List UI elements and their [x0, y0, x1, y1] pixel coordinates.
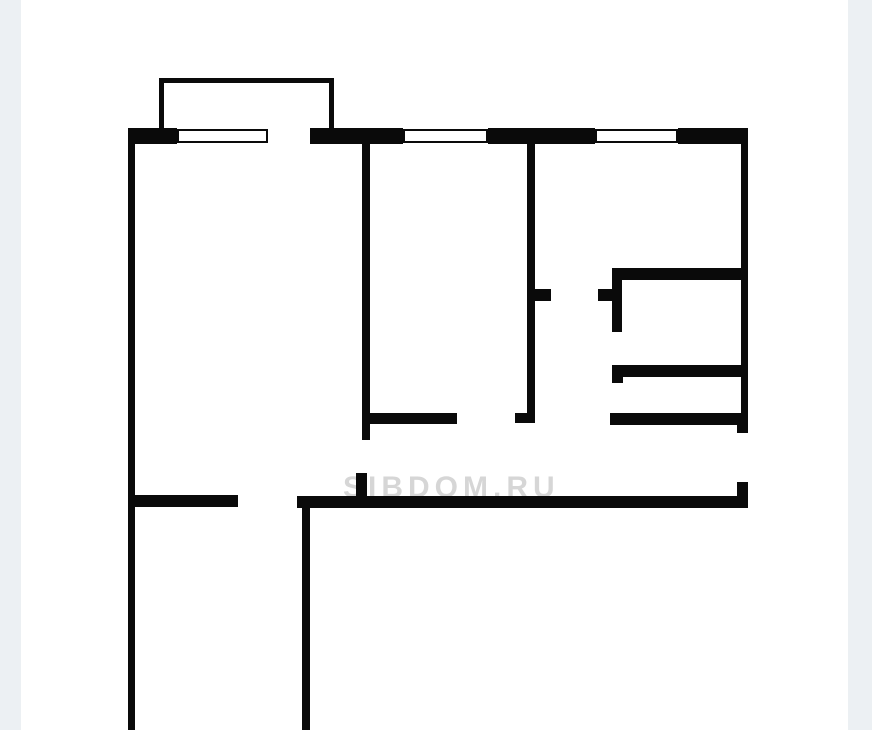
closet-stub-tick [598, 289, 612, 301]
closet-bottom-wall [610, 413, 748, 425]
middle-divider-tick [535, 289, 551, 301]
left-room-door-jamb [356, 473, 367, 498]
window-3 [595, 129, 678, 143]
window-2 [403, 129, 488, 143]
balcony-top-wall [159, 78, 334, 83]
balcony-left-wall [159, 83, 164, 128]
top-wall-seg-4 [678, 128, 748, 144]
lower-room-right-wall [302, 497, 310, 730]
top-wall-seg-2 [310, 128, 403, 144]
closet-left-stub [612, 280, 622, 332]
top-wall-seg-1 [128, 128, 177, 144]
corridor-south-wall-right [297, 496, 748, 508]
window-1 [177, 129, 268, 143]
corridor-north-wall-left [362, 413, 457, 424]
left-exterior-wall [128, 144, 135, 730]
balcony-right-wall [329, 83, 334, 128]
floorplan-canvas: SIBDOM.RU [0, 0, 872, 730]
closet-mid-wall [612, 365, 748, 377]
middle-divider-foot [515, 413, 535, 423]
middle-divider-wall [527, 144, 535, 422]
floorplan-page: SIBDOM.RU [0, 0, 872, 730]
entry-door-jamb [737, 482, 748, 498]
closet-top-wall [612, 268, 748, 280]
top-wall-seg-3 [488, 128, 595, 144]
closet-mid-wall-foot [612, 377, 623, 383]
corridor-south-wall-left [130, 495, 238, 507]
right-exterior-wall [741, 144, 748, 420]
bedroom-divider-wall [362, 144, 370, 440]
